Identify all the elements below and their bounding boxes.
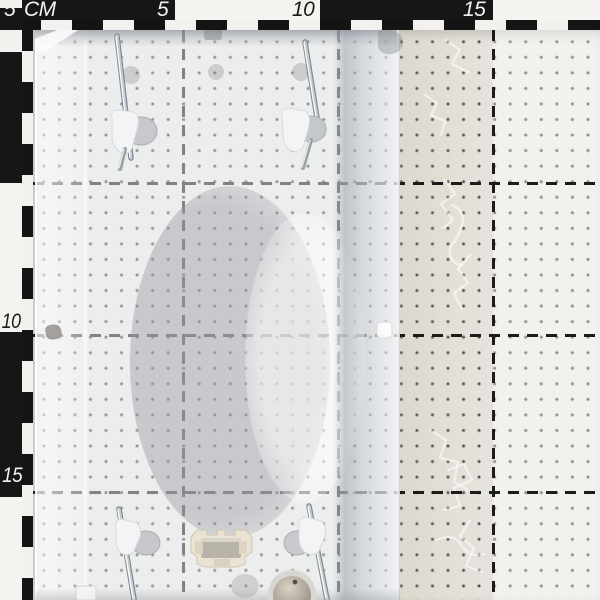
ruler-unit-label: CM — [24, 0, 56, 20]
fixture-hardware — [0, 0, 600, 600]
ruler-left-label-10: 10 — [2, 312, 21, 332]
ruler-left — [0, 0, 22, 600]
putty-blob — [46, 325, 62, 339]
glass-dots — [122, 63, 310, 84]
ruler-left-label-15: 15 — [2, 466, 22, 486]
bottom-left-fitting — [76, 586, 96, 600]
ruler-top-ticks — [22, 20, 600, 30]
mounting-pin-bottom-left — [116, 509, 160, 599]
threaded-boss — [268, 570, 316, 600]
mounting-pin-top-left — [112, 36, 157, 169]
mounting-pin-top-right — [282, 42, 326, 168]
ruler-left-ticks — [22, 30, 33, 600]
ruler-top-label-10: 10 — [292, 0, 314, 20]
ruler-top-label-15: 15 — [463, 0, 485, 20]
calibration-photo: CM 5 10 15 5 10 15 — [0, 0, 600, 600]
ruler-top-label-5: 5 — [157, 0, 168, 20]
terminal-block — [191, 530, 259, 598]
top-right-smudge — [378, 30, 403, 54]
white-tab — [377, 322, 392, 338]
ruler-left-label-5: 5 — [4, 0, 15, 20]
top-edge-notch — [204, 29, 222, 40]
